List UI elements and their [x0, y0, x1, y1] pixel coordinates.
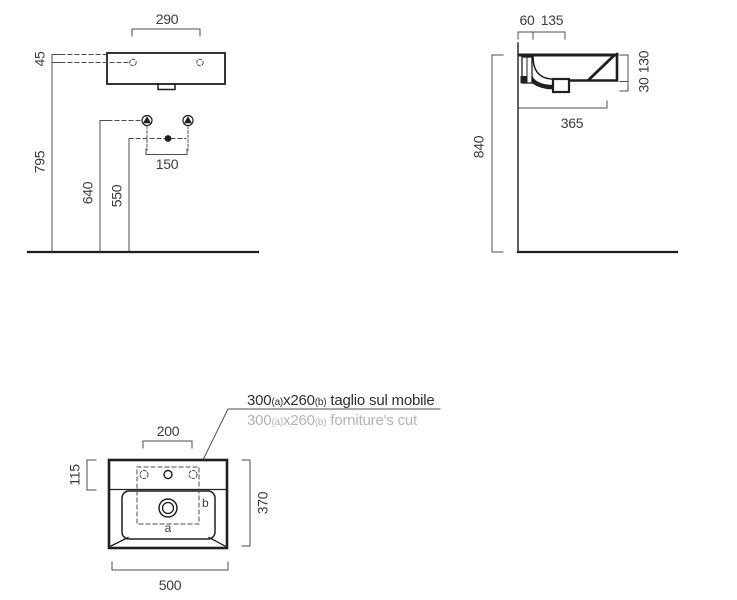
plan-dim-115-label: 115 — [67, 464, 83, 486]
technical-drawing-page: 290 45 795 640 550 — [0, 0, 737, 600]
front-dim-150-bracket: 150 — [146, 149, 187, 172]
front-dim-640-label: 640 — [80, 181, 96, 204]
side-dim-60-label: 60 — [520, 12, 535, 28]
front-dim-550-label: 550 — [109, 184, 125, 207]
plan-dim-200-label: 200 — [157, 423, 180, 439]
side-front-slope — [589, 57, 613, 80]
side-dim-130-label: 130 — [636, 50, 652, 73]
drawing-canvas: 290 45 795 640 550 — [0, 0, 737, 600]
side-bowl-curve — [533, 57, 553, 79]
plan-note-italian: 300(a)x260(b) taglio sul mobile — [247, 392, 435, 409]
plan-dim-115-bracket: 115 — [67, 460, 96, 490]
side-dim-top-bracket: 60 135 — [518, 12, 565, 39]
side-dim-840: 840 — [471, 55, 503, 252]
front-drain-point — [165, 135, 172, 142]
plan-dim-370-label: 370 — [255, 491, 271, 514]
plan-note-english: 300(a)x260(b) forniture's cut — [247, 412, 418, 429]
side-dim-365-bracket: 365 — [519, 101, 607, 131]
side-basin-section — [519, 54, 617, 92]
front-dim-150-label: 150 — [156, 156, 179, 172]
front-view: 290 45 795 640 550 — [28, 11, 258, 252]
side-dim-840-label: 840 — [471, 135, 487, 158]
front-dim-45-label: 45 — [32, 51, 48, 66]
front-basin-outline — [107, 53, 225, 84]
side-dim-135-label: 135 — [541, 12, 564, 28]
plan-cut-label-b: b — [202, 496, 209, 510]
plan-basin-body: a b — [109, 460, 227, 548]
plan-cut-note: 300(a)x260(b) taglio sul mobile 300(a)x2… — [200, 392, 440, 466]
front-dim-795-label: 795 — [32, 150, 48, 173]
side-dim-365-label: 365 — [561, 115, 584, 131]
side-view: 60 135 130 30 365 — [471, 12, 677, 252]
plan-dim-200-bracket: 200 — [143, 423, 192, 448]
side-fixing-nut — [521, 76, 527, 83]
plan-dim-370-bracket: 370 — [242, 460, 271, 546]
front-basin-body — [107, 53, 225, 90]
plan-cut-label-a: a — [165, 521, 172, 535]
plan-dim-500-label: 500 — [159, 577, 182, 593]
side-dim-30-label: 30 — [636, 77, 652, 92]
front-dim-290-label: 290 — [156, 11, 179, 27]
side-drain-box — [553, 79, 569, 92]
side-dim-right-bracket: 130 30 — [620, 50, 652, 92]
front-bracket-markers — [142, 116, 193, 151]
front-dim-290-bracket: 290 — [132, 11, 200, 36]
plan-dim-500-bracket: 500 — [112, 562, 228, 593]
plan-view: 300(a)x260(b) taglio sul mobile 300(a)x2… — [67, 392, 440, 593]
